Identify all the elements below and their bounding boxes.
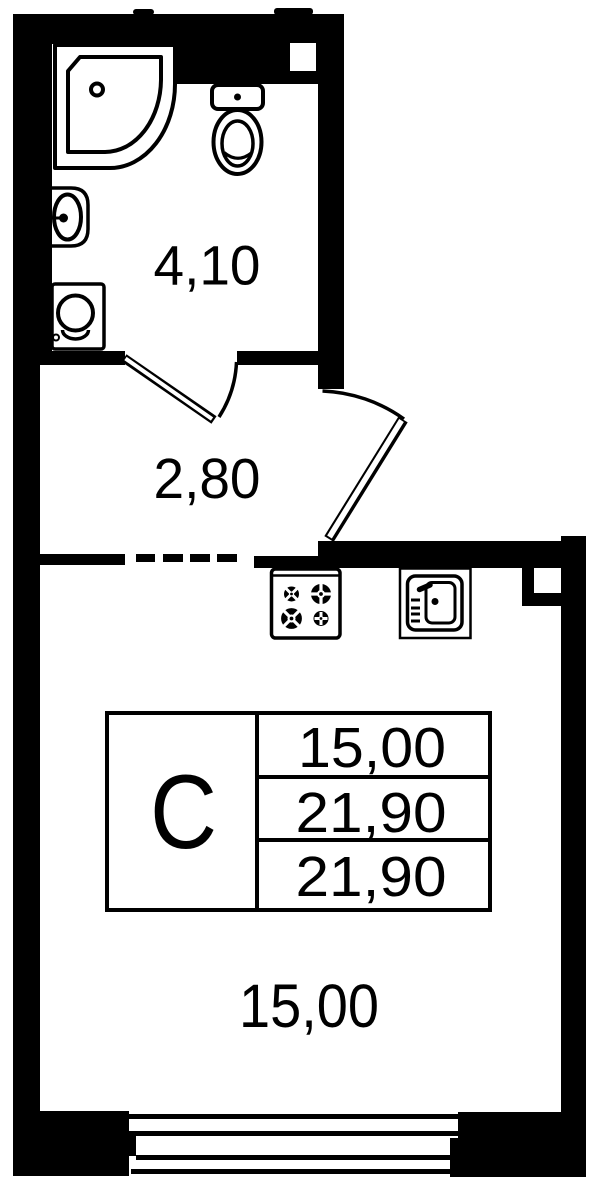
svg-text:15,00: 15,00 [298,716,446,780]
svg-text:2,80: 2,80 [154,447,261,511]
svg-text:С: С [150,754,217,872]
svg-text:21,90: 21,90 [296,845,447,909]
svg-text:4,10: 4,10 [154,235,261,297]
svg-text:21,90: 21,90 [296,781,447,845]
svg-text:15,00: 15,00 [239,972,379,1040]
